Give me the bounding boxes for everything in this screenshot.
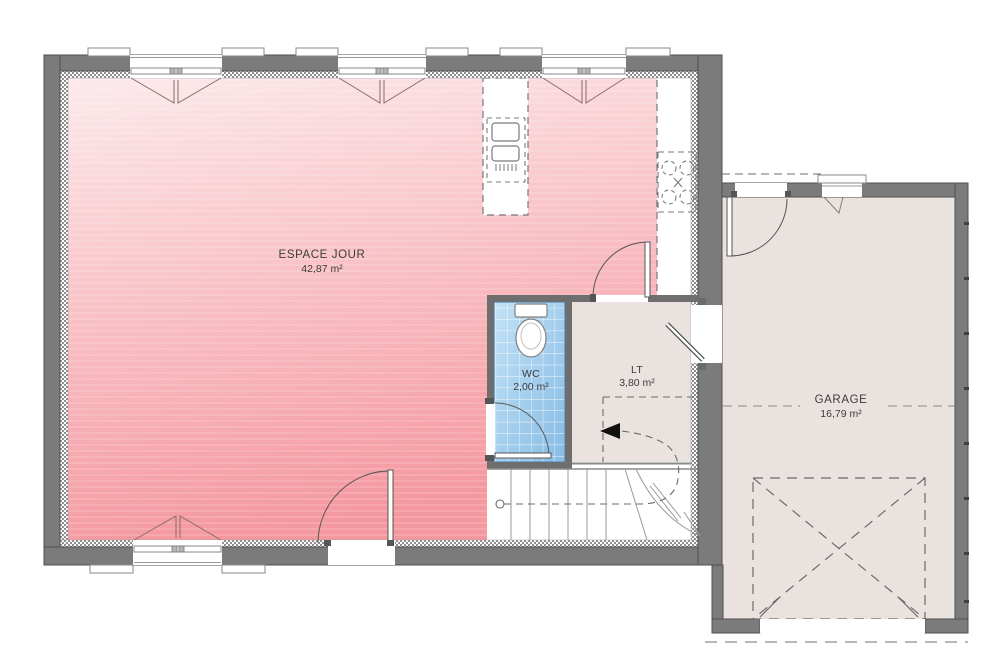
label-espace-jour-area: 42,87 m² [301, 263, 343, 275]
label-garage-area: 16,79 m² [820, 408, 862, 420]
label-lt: LT [631, 364, 643, 376]
floor-plan-drawing: ESPACE JOUR 42,87 m² WC 2,00 m² LT 3,80 … [0, 0, 1000, 650]
label-wc-area: 2,00 m² [513, 381, 549, 393]
floor-plan: ESPACE JOUR 42,87 m² WC 2,00 m² LT 3,80 … [0, 0, 1000, 650]
toilet-icon [515, 304, 547, 357]
label-garage: GARAGE [815, 394, 868, 406]
label-espace-jour: ESPACE JOUR [279, 249, 366, 261]
label-wc: WC [522, 368, 540, 380]
garage-door-opening [760, 619, 925, 633]
label-lt-area: 3,80 m² [619, 377, 655, 389]
label-garage-group: GARAGE 16,79 m² [800, 390, 884, 420]
